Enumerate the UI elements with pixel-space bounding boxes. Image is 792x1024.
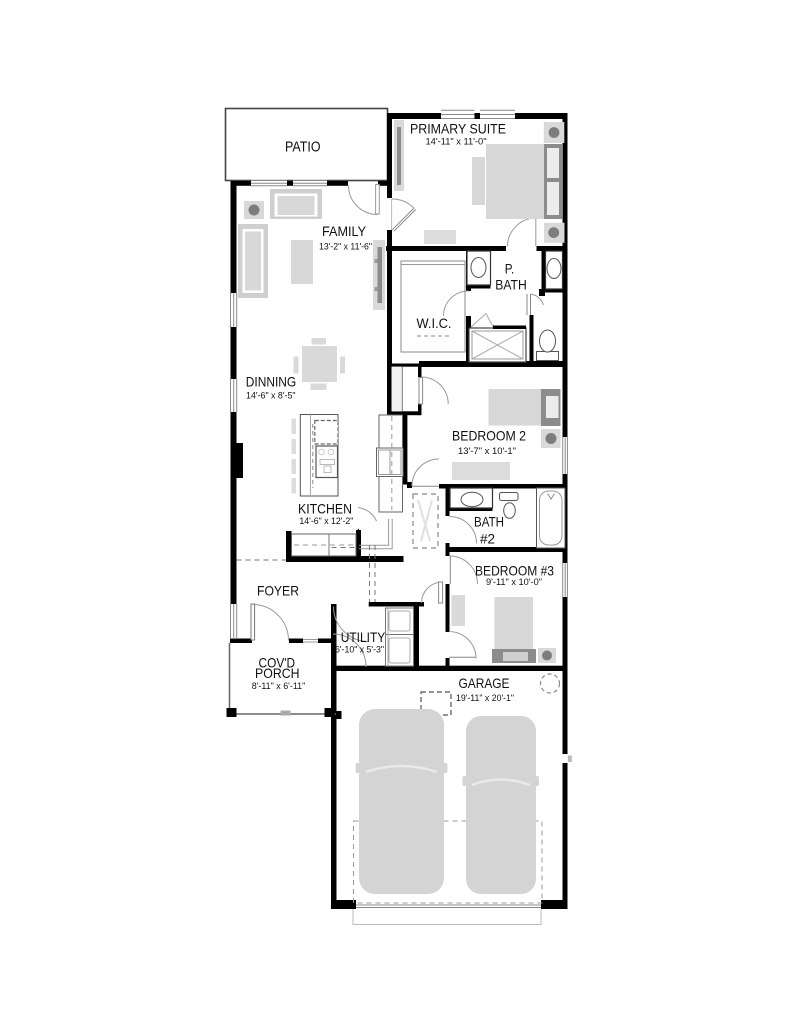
svg-text:14'-6" x 8'-5": 14'-6" x 8'-5" bbox=[246, 391, 296, 402]
svg-text:13'-2" x 11'-6": 13'-2" x 11'-6" bbox=[319, 242, 372, 253]
svg-text:UTILITY: UTILITY bbox=[341, 629, 386, 645]
svg-text:KITCHEN: KITCHEN bbox=[298, 500, 352, 516]
svg-text:BEDROOM 2: BEDROOM 2 bbox=[452, 427, 526, 443]
svg-text:19'-11" x 20'-1": 19'-11" x 20'-1" bbox=[456, 693, 514, 704]
svg-text:14'-6" x 12'-2": 14'-6" x 12'-2" bbox=[299, 516, 353, 527]
svg-text:6'-10" x 5'-3": 6'-10" x 5'-3" bbox=[335, 644, 384, 655]
svg-text:9'-11" x 10'-0": 9'-11" x 10'-0" bbox=[486, 577, 542, 588]
svg-text:PRIMARY SUITE: PRIMARY SUITE bbox=[410, 121, 506, 137]
svg-text:PORCH: PORCH bbox=[255, 665, 300, 681]
svg-text:13'-7" x 10'-1": 13'-7" x 10'-1" bbox=[458, 446, 516, 457]
svg-text:8'-11" x 6'-11": 8'-11" x 6'-11" bbox=[252, 681, 306, 692]
svg-text:#2: #2 bbox=[480, 530, 495, 546]
svg-text:BATH: BATH bbox=[474, 513, 504, 529]
svg-text:FAMILY: FAMILY bbox=[322, 223, 367, 239]
svg-text:FOYER: FOYER bbox=[257, 582, 299, 598]
svg-text:BATH: BATH bbox=[495, 277, 527, 293]
svg-text:W.I.C.: W.I.C. bbox=[417, 315, 452, 331]
svg-text:PATIO: PATIO bbox=[285, 139, 321, 155]
svg-text:DINNING: DINNING bbox=[246, 373, 297, 389]
svg-text:14'-11" x 11'-0": 14'-11" x 11'-0" bbox=[426, 136, 487, 147]
svg-text:P.: P. bbox=[505, 261, 515, 277]
svg-text:GARAGE: GARAGE bbox=[459, 675, 510, 691]
